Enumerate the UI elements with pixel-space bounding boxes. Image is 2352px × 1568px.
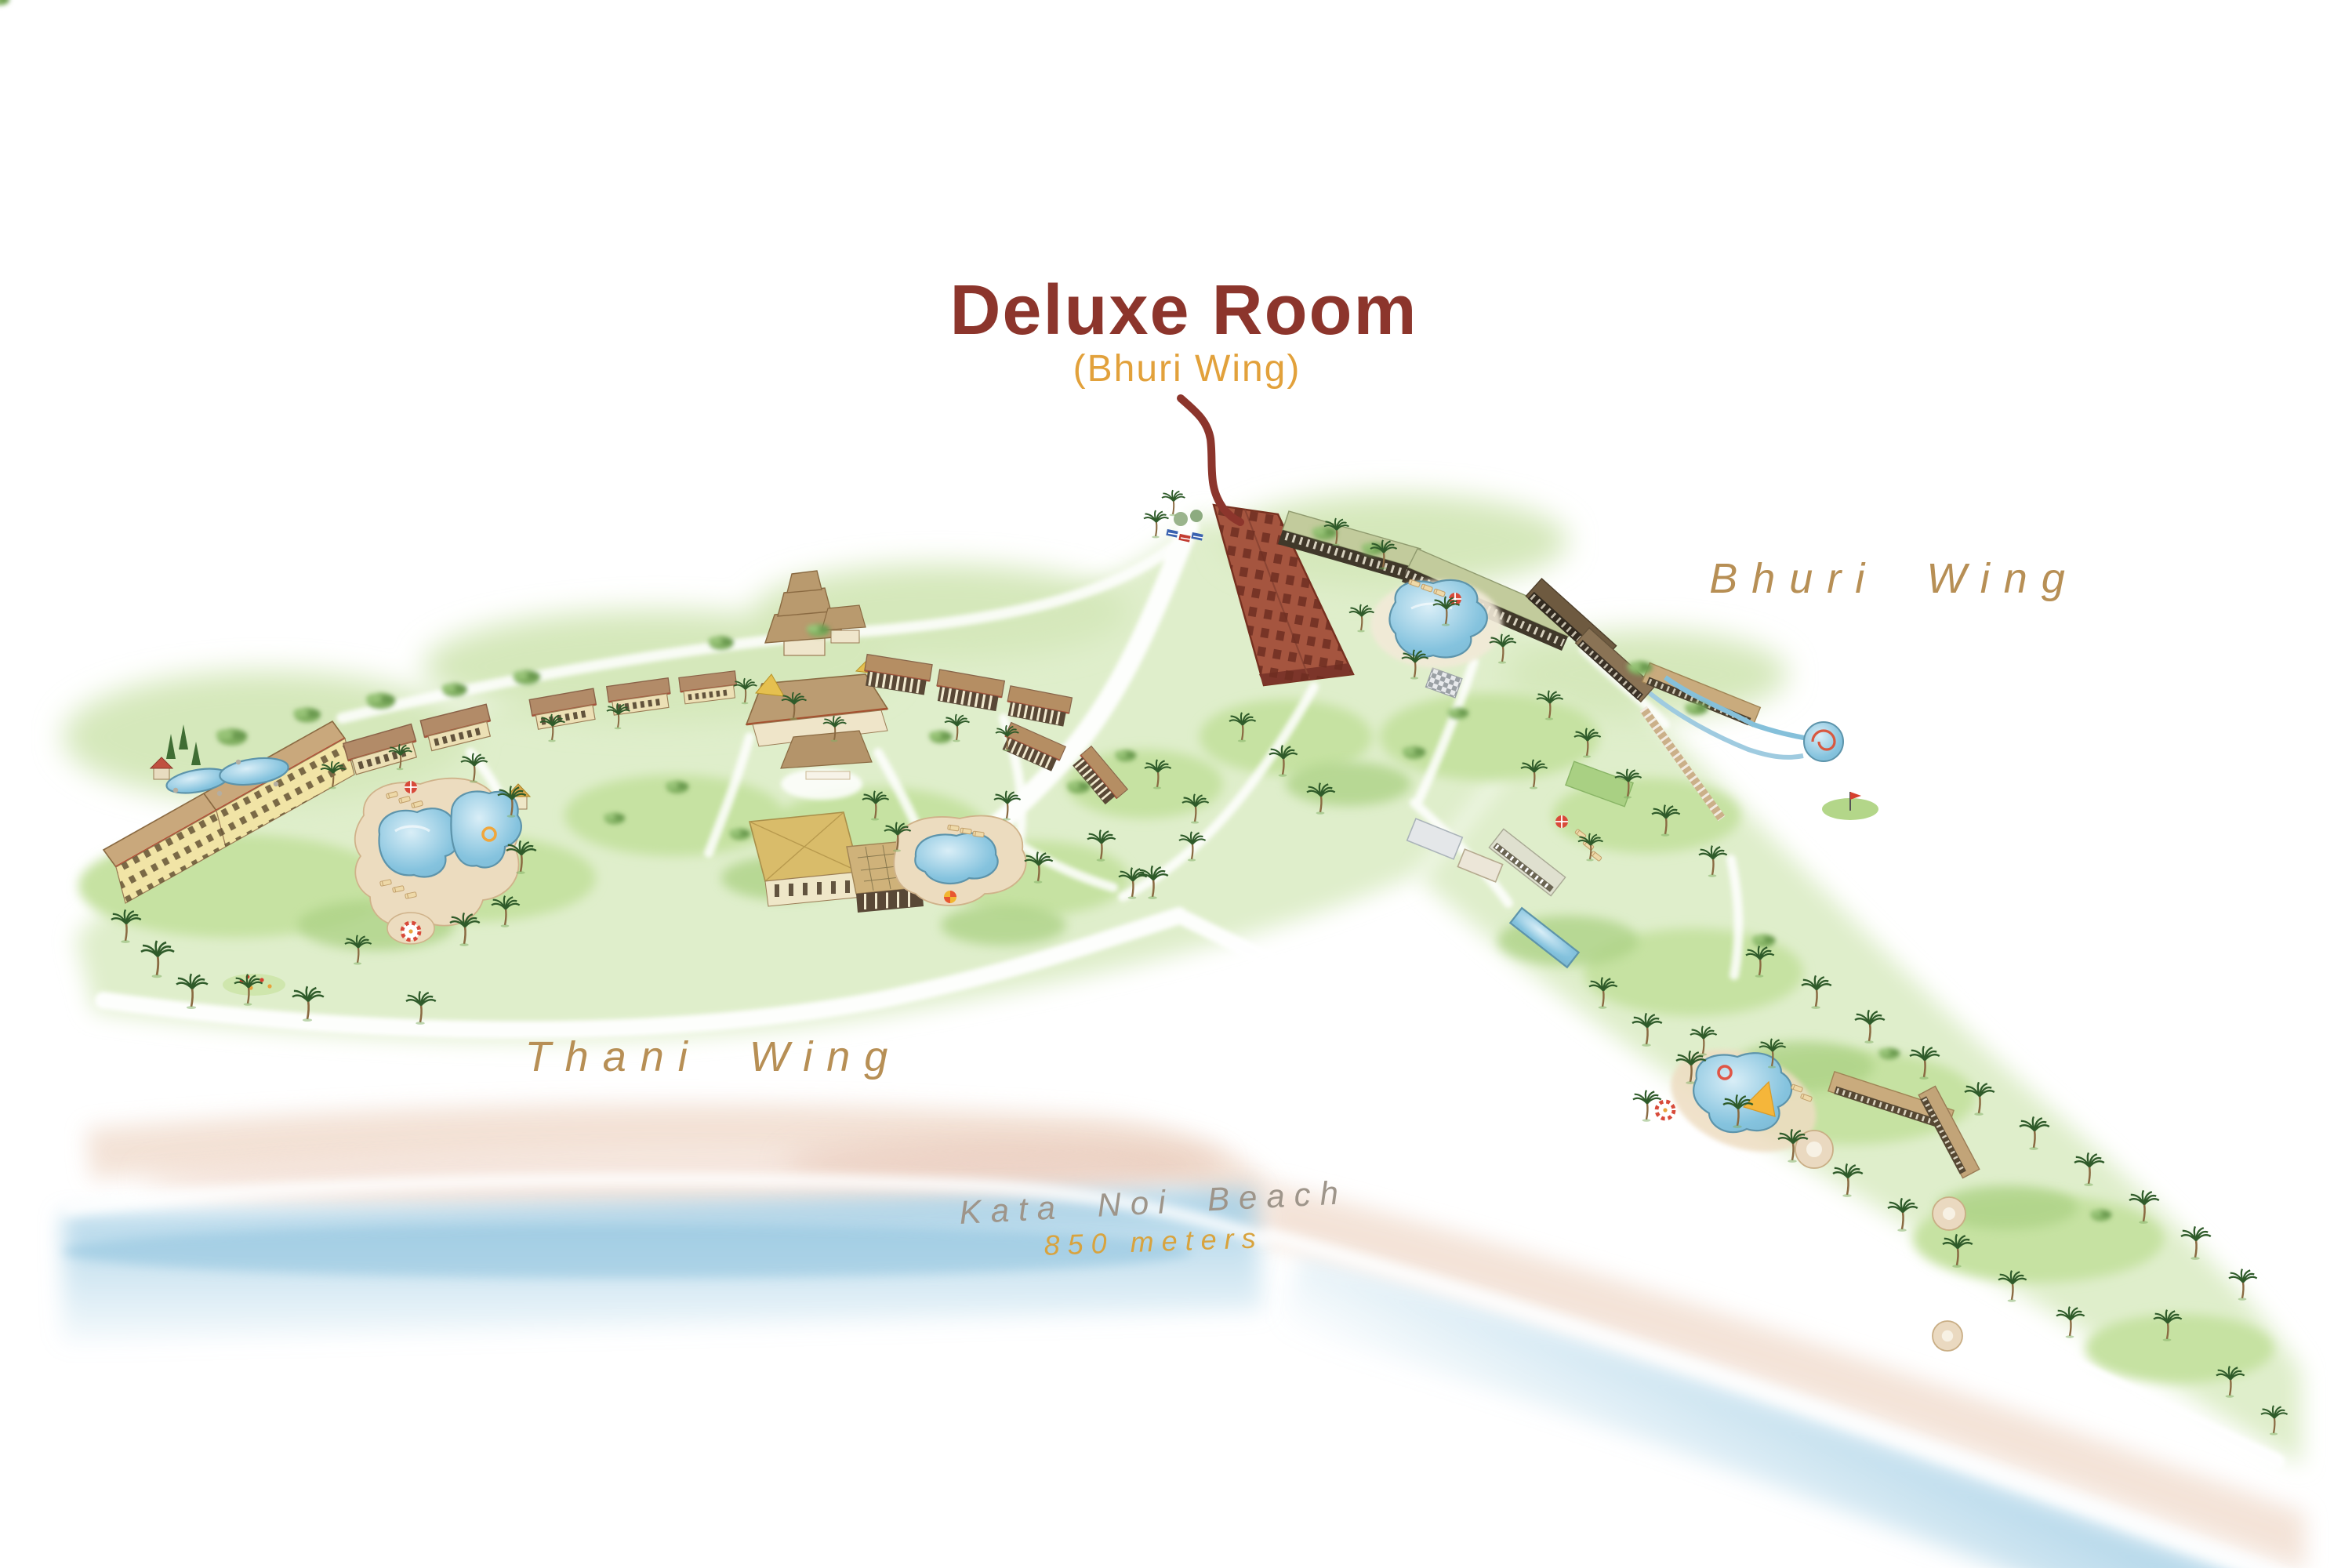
resort-map: Deluxe Room (Bhuri Wing) Bhuri Wing Than… (0, 0, 2352, 1568)
label-bhuri-wing: Bhuri Wing (1709, 555, 2079, 602)
pointer-arrow (1181, 398, 1240, 522)
beachball-umbrella (944, 891, 956, 903)
pool-umbrella (405, 781, 417, 793)
carousel (402, 923, 419, 940)
map-title: Deluxe Room (949, 271, 1417, 350)
label-thani-wing: Thani Wing (525, 1033, 902, 1080)
map-subtitle: (Bhuri Wing) (1073, 348, 1301, 390)
golf-flag (1822, 792, 1878, 820)
